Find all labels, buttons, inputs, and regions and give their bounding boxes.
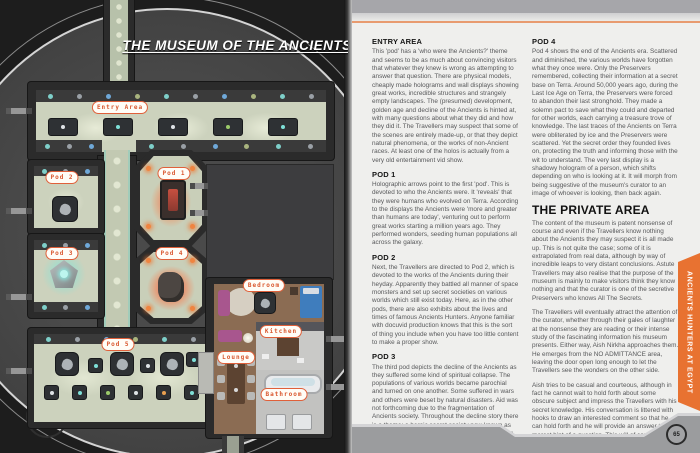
entry-exhibit-case: [103, 118, 133, 136]
pod5-exhibit-case: [110, 352, 134, 376]
pod3-display-band-bottom: [34, 302, 98, 312]
right-page-text: ENTRY AREA This 'pod' has a 'who were th…: [352, 0, 700, 453]
section-heading-pod4: POD 4: [532, 38, 679, 46]
pod5-exhibit-case: [128, 385, 143, 400]
room-label-pod1: Pod 1: [157, 167, 190, 180]
lounge-sofa: [218, 330, 242, 342]
section-heading-entry-area: ENTRY AREA: [372, 38, 519, 46]
kitchen-appliance: [297, 358, 304, 363]
chapter-side-tab: ANCIENTS HUNTERS AT EGYPT: [678, 253, 700, 411]
entry-exhibit-case: [158, 118, 188, 136]
bathroom-sink: [292, 414, 312, 430]
back-area-roof: [206, 164, 334, 280]
pod1-corner-light: [190, 166, 195, 171]
pod5-exhibit-case: [100, 385, 115, 400]
bedroom-bed: [300, 286, 322, 318]
left-page-map: THE MUSEUM OF THE ANCIENTS: [0, 0, 348, 453]
dock-clamp: [6, 294, 32, 300]
book-spread: THE MUSEUM OF THE ANCIENTS: [0, 0, 700, 453]
section-body-pod4: Pod 4 shows the end of the Ancients era.…: [532, 48, 679, 198]
pod1-exhibit: [160, 180, 186, 220]
entry-display-band-top: [36, 90, 326, 102]
lounge-chair: [217, 375, 225, 383]
map-title: THE MUSEUM OF THE ANCIENTS: [122, 38, 348, 55]
pod2-exhibit-case: [52, 196, 78, 222]
room-label-entry-area: Entry Area: [92, 101, 148, 114]
bedroom-nightstand: [290, 287, 298, 295]
pod5-exhibit-case: [140, 358, 155, 373]
bedroom-display-case: [254, 292, 276, 314]
text-column-left: ENTRY AREA This 'pod' has a 'who were th…: [372, 38, 519, 453]
pod5-exhibit-case: [44, 385, 59, 400]
text-column-right: POD 4 Pod 4 shows the end of the Ancient…: [532, 38, 679, 453]
entry-exhibit-case: [268, 118, 298, 136]
bathroom-sink: [266, 414, 286, 430]
kitchen-appliance: [262, 354, 269, 359]
section-body-pod2: Next, the Travellers are directed to Pod…: [372, 264, 519, 347]
pod4-corner-light: [190, 258, 195, 263]
section-heading-private-area: THE PRIVATE AREA: [532, 204, 679, 217]
section-heading-pod1: POD 1: [372, 171, 519, 179]
dock-clamp: [6, 208, 32, 214]
pod5-exhibit-case: [160, 352, 184, 376]
dock-clamp: [190, 183, 208, 189]
pod4-statue: [158, 272, 184, 302]
header-gradient: [352, 13, 700, 21]
dock-clamp: [326, 336, 346, 342]
entry-exhibit-case: [48, 118, 78, 136]
section-body-entry-area: This 'pod' has a 'who were the Ancients?…: [372, 48, 519, 165]
room-label-bedroom: Bedroom: [243, 279, 285, 292]
pod5-exhibit-case: [55, 352, 79, 376]
room-label-pod2: Pod 2: [45, 171, 78, 184]
lounge-chair: [217, 392, 225, 400]
dock-clamp: [6, 108, 32, 114]
section-body-pod1: Holographic arrows point to the first 'p…: [372, 181, 519, 248]
pod5-airlock: [198, 352, 214, 394]
dock-clamp: [190, 210, 208, 216]
private-exit-corridor: [222, 436, 244, 453]
entry-exhibit-case: [213, 118, 243, 136]
room-label-pod5: Pod 5: [101, 338, 134, 351]
dock-clamp: [6, 368, 32, 374]
section-heading-pod3: POD 3: [372, 353, 519, 361]
main-corridor-floor: [104, 150, 130, 330]
pod1-corner-light: [190, 224, 195, 229]
pod4-corner-light: [190, 306, 195, 311]
pod5-exhibit-case: [88, 358, 103, 373]
pod5-exhibit-case: [156, 385, 171, 400]
header-orange-rule: [352, 21, 700, 23]
pod1-corner-light: [146, 166, 151, 171]
page-number-badge: 65: [666, 424, 687, 445]
room-label-bathroom: Bathroom: [261, 388, 308, 401]
private-area-paragraph-2: The Travellers will eventually attract t…: [532, 309, 679, 376]
private-area-paragraph-1: The content of the museum is patent nons…: [532, 220, 679, 303]
room-label-kitchen: Kitchen: [260, 325, 302, 338]
room-label-pod3: Pod 3: [45, 247, 78, 260]
page-number: 65: [673, 432, 680, 438]
header-band: [352, 0, 700, 13]
lounge-lamp: [243, 333, 253, 343]
pod4-corner-light: [146, 306, 151, 311]
dock-clamp: [326, 384, 346, 390]
pod5-exhibit-case: [72, 385, 87, 400]
room-label-lounge: Lounge: [217, 351, 255, 364]
kitchen-island: [277, 338, 299, 356]
room-label-pod4: Pod 4: [155, 247, 188, 260]
pod5-exhibit-case: [184, 385, 199, 400]
pod4-corner-light: [146, 258, 151, 263]
bedroom-sofa: [218, 290, 230, 316]
lounge-chair: [247, 375, 255, 383]
entry-display-band-bottom-left: [36, 140, 102, 152]
bedroom-rug: [226, 288, 256, 316]
section-heading-pod2: POD 2: [372, 254, 519, 262]
lounge-chair: [247, 392, 255, 400]
pod1-corner-light: [146, 224, 151, 229]
